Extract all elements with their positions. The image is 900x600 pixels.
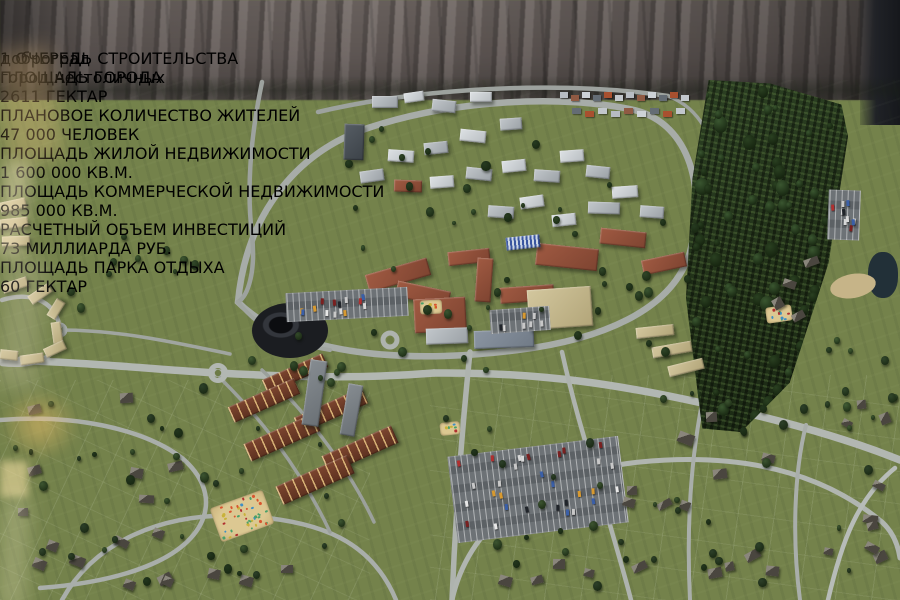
cottage	[139, 495, 154, 504]
cottage	[626, 92, 634, 98]
cottage	[663, 111, 672, 117]
cottage	[823, 547, 834, 556]
tree	[589, 521, 598, 531]
parked-car	[332, 299, 335, 305]
tree	[644, 287, 653, 297]
tree	[92, 452, 97, 457]
stat-label: ПЛОЩАДЬ ПАРКА ОТДЫХА	[0, 258, 384, 277]
parked-car	[344, 310, 347, 316]
tree	[553, 216, 560, 224]
tree	[762, 458, 771, 468]
tree	[562, 548, 569, 556]
playground-equipment	[435, 306, 438, 309]
playground-equipment	[254, 524, 257, 527]
cottage	[782, 279, 797, 291]
parked-car	[572, 509, 575, 515]
tree	[847, 568, 851, 573]
cottage	[659, 95, 667, 101]
tree	[239, 468, 244, 474]
cottage	[857, 400, 867, 410]
tree	[504, 277, 510, 284]
tree	[322, 543, 327, 549]
tree	[755, 542, 764, 552]
cottage	[593, 95, 601, 101]
tree	[467, 325, 472, 331]
parked-car	[565, 500, 568, 506]
cottage	[583, 568, 595, 578]
tree	[607, 182, 612, 188]
tree	[848, 348, 853, 354]
cottage	[531, 574, 545, 585]
playground-equipment	[242, 498, 245, 501]
stat-label: ПЛОЩАДЬ КОММЕРЧЕСКОЙ НЕДВИЖИМОСТИ	[0, 182, 384, 201]
model-building	[588, 201, 620, 214]
model-building	[474, 257, 493, 302]
tree	[102, 547, 107, 553]
model-building	[667, 358, 705, 377]
model-building	[430, 175, 455, 189]
tree	[391, 266, 396, 272]
tree	[207, 552, 214, 561]
cottage	[571, 95, 579, 101]
playground-equipment	[220, 506, 223, 509]
tree	[463, 184, 471, 193]
parked-car	[491, 455, 494, 461]
parked-car	[565, 510, 568, 516]
cottage	[803, 255, 820, 268]
tree	[674, 497, 679, 503]
playground-equipment	[454, 430, 457, 433]
cottage	[27, 464, 42, 476]
tree	[112, 536, 117, 542]
tree	[690, 391, 694, 396]
tree	[224, 564, 233, 574]
cottage	[676, 108, 685, 114]
parked-car	[456, 460, 460, 466]
cottage	[122, 579, 135, 591]
playground-equipment	[259, 520, 262, 523]
cottage	[152, 527, 165, 539]
playground-equipment	[222, 513, 225, 516]
tree	[398, 347, 407, 357]
tree	[80, 523, 89, 533]
parked-car	[464, 501, 468, 507]
playground-equipment	[249, 520, 252, 523]
playground-equipment	[235, 533, 238, 536]
cottage	[624, 108, 633, 114]
tree	[684, 275, 691, 283]
cottage	[45, 540, 59, 554]
parked-car	[325, 310, 328, 316]
cottage	[582, 92, 590, 98]
tree	[452, 221, 456, 226]
playground-equipment	[265, 510, 268, 513]
stats-panel: 1 ОЧЕРЕДЬ СТРОИТЕЛЬСТВА ПЛОЩАДЬ ГОРОДА 2…	[0, 49, 384, 296]
parked-car	[522, 312, 525, 318]
parked-car	[849, 225, 853, 231]
parked-car	[832, 205, 835, 211]
playground-equipment	[257, 516, 260, 519]
parked-car	[842, 209, 845, 215]
tree	[483, 367, 489, 373]
tree	[426, 207, 434, 216]
tree	[77, 303, 86, 313]
playground-equipment	[222, 522, 225, 525]
parked-car	[344, 297, 347, 303]
playground-pad	[439, 421, 460, 436]
stat-label: РАСЧЕТНЫЙ ОБЪЕМ ИНВЕСТИЦИЙ	[0, 220, 384, 239]
tree	[725, 399, 731, 406]
tree	[871, 415, 876, 420]
model-building	[599, 228, 646, 249]
cottage	[681, 95, 689, 101]
tree	[180, 534, 184, 539]
tree	[675, 507, 681, 514]
parked-car	[521, 456, 524, 462]
model-building	[403, 91, 424, 104]
stat-value: 73 МИЛЛИАРДА РУБ.	[0, 239, 384, 258]
parked-car	[846, 200, 849, 206]
cottage	[161, 576, 174, 588]
model-building	[46, 298, 65, 320]
playground-equipment	[784, 318, 787, 321]
tree	[842, 387, 850, 396]
tree	[646, 340, 652, 347]
tree	[706, 519, 711, 525]
model-building	[431, 99, 456, 113]
tree	[290, 361, 298, 370]
parked-car	[301, 309, 304, 315]
tree	[623, 556, 629, 563]
reflection-stats-streak	[0, 496, 31, 600]
tree	[174, 428, 183, 438]
playground-equipment	[445, 427, 448, 430]
tree	[164, 498, 169, 504]
tree	[147, 414, 155, 424]
model-building	[505, 234, 540, 250]
parked-car	[503, 325, 506, 331]
tree	[847, 425, 852, 431]
city-model-photo: доброград город нестоличных 1 ОЧЕРЕДЬ СТ…	[0, 0, 900, 600]
playground-equipment	[229, 510, 232, 513]
tree	[653, 502, 657, 507]
tree	[256, 426, 260, 431]
model-building	[275, 455, 354, 505]
playground-equipment	[250, 527, 253, 530]
parked-car	[471, 482, 475, 488]
tree	[691, 223, 699, 233]
tree	[864, 465, 873, 475]
parked-car	[551, 481, 554, 487]
cottage	[656, 498, 672, 511]
stat-value: 985 000 КВ.М.	[0, 201, 384, 220]
cottage	[604, 92, 612, 98]
tree	[574, 331, 582, 340]
parked-car	[525, 507, 529, 513]
tree	[626, 283, 633, 291]
tree	[504, 213, 511, 221]
stat-row: РАСЧЕТНЫЙ ОБЪЕМ ИНВЕСТИЦИЙ 73 МИЛЛИАРДА …	[0, 220, 384, 258]
parked-car	[494, 524, 498, 530]
parked-car	[539, 472, 543, 478]
lit-building-center	[0, 19, 37, 50]
tree	[371, 329, 377, 336]
lit-building-west	[0, 0, 32, 22]
parked-car	[465, 521, 469, 527]
cottage	[560, 92, 568, 98]
model-building	[470, 92, 492, 102]
tree	[327, 378, 335, 387]
tree	[126, 475, 134, 485]
tree	[68, 553, 74, 560]
model-building	[585, 165, 610, 179]
tree	[740, 427, 747, 435]
parked-car	[846, 216, 849, 222]
tree	[758, 578, 766, 587]
playground-pad	[210, 490, 275, 543]
tree	[130, 449, 135, 455]
cottage	[677, 430, 696, 446]
parked-car	[491, 490, 495, 496]
cottage	[167, 460, 184, 473]
tree	[642, 271, 651, 281]
parked-car	[505, 504, 509, 510]
parked-car	[558, 451, 562, 457]
playground-equipment	[787, 312, 790, 315]
cottage	[637, 95, 645, 101]
playground-equipment	[450, 425, 453, 428]
tree	[826, 347, 832, 354]
cottage	[498, 574, 513, 587]
cottage	[120, 393, 133, 404]
parked-car	[533, 313, 536, 319]
playground-equipment	[243, 513, 246, 516]
tree	[618, 539, 624, 546]
tree	[834, 337, 840, 343]
playground-equipment	[230, 529, 233, 532]
tree	[715, 557, 722, 565]
tree	[599, 267, 606, 276]
stat-row: ПЛОЩАДЬ ПАРКА ОТДЫХА 60 ГЕКТАР	[0, 258, 384, 296]
tree	[779, 420, 788, 430]
cottage	[572, 108, 581, 114]
stat-row: ПЛОЩАДЬ КОММЕРЧЕСКОЙ НЕДВИЖИМОСТИ 985 00…	[0, 182, 384, 220]
cottage	[627, 485, 638, 494]
cottage	[31, 556, 47, 570]
parked-car	[851, 219, 854, 225]
tree	[324, 493, 329, 499]
cottage	[670, 92, 678, 98]
cottage	[637, 111, 646, 117]
pond	[868, 252, 898, 298]
tree	[461, 355, 467, 362]
parked-car	[530, 321, 533, 327]
tree	[597, 482, 603, 489]
parked-car	[526, 453, 530, 459]
tree	[825, 401, 831, 407]
tree	[248, 356, 256, 365]
model-building	[501, 159, 526, 173]
tree	[558, 528, 563, 533]
playground-equipment	[230, 506, 233, 509]
tree	[593, 581, 602, 592]
tree	[660, 219, 666, 226]
tree	[843, 402, 851, 412]
tree	[635, 291, 643, 300]
parked-car	[610, 462, 614, 468]
tree	[471, 209, 476, 215]
playground-equipment	[454, 426, 457, 429]
warm-hotspot-core	[0, 461, 28, 497]
parked-car	[321, 298, 324, 304]
tree	[334, 369, 340, 376]
model-building	[500, 117, 523, 131]
model-building	[640, 205, 665, 219]
playground-equipment	[251, 506, 254, 509]
playground-equipment	[245, 507, 248, 510]
model-building	[426, 327, 469, 344]
cottage	[553, 559, 565, 569]
tree	[493, 539, 502, 550]
parked-car	[599, 442, 603, 448]
tree	[760, 405, 766, 412]
parked-car	[562, 448, 565, 454]
parked-car	[498, 481, 501, 487]
model-building	[560, 149, 585, 163]
model-building	[43, 340, 67, 358]
playground-equipment	[240, 509, 243, 512]
cottage	[713, 468, 728, 479]
parked-car	[592, 488, 595, 494]
parked-car	[338, 302, 341, 308]
playground-equipment	[237, 515, 240, 518]
tree	[660, 395, 667, 403]
cottage	[631, 560, 648, 574]
tree	[143, 577, 151, 586]
cottage	[707, 567, 723, 580]
tree	[524, 535, 529, 541]
tree	[499, 460, 506, 468]
cottage	[765, 565, 779, 576]
tree	[572, 231, 578, 238]
parked-car	[540, 321, 543, 327]
tree	[295, 332, 302, 340]
stats-title: 1 ОЧЕРЕДЬ СТРОИТЕЛЬСТВА	[0, 49, 384, 68]
playground-equipment	[222, 536, 225, 539]
tree	[487, 426, 492, 432]
cottage	[281, 564, 294, 572]
model-building	[340, 383, 364, 437]
parked-car	[591, 498, 595, 504]
model-building	[534, 169, 561, 183]
tree	[602, 281, 607, 287]
tree	[39, 481, 48, 491]
tree	[513, 560, 520, 568]
cottage	[872, 480, 886, 492]
tree	[595, 307, 601, 314]
tree	[338, 519, 345, 527]
model-building	[459, 129, 486, 144]
warm-hotspot	[0, 389, 80, 461]
parked-car	[499, 493, 503, 499]
cottage	[866, 521, 878, 531]
tree	[173, 453, 180, 461]
cottage	[598, 108, 607, 114]
parked-car	[312, 305, 316, 311]
parked-car	[514, 464, 518, 470]
tree	[837, 525, 842, 530]
parked-car	[556, 505, 559, 511]
playground-equipment	[224, 517, 227, 520]
cottage	[585, 111, 594, 117]
tree	[551, 474, 556, 480]
stat-label: ПЛОЩАДЬ ГОРОДА	[0, 68, 384, 87]
tree	[481, 161, 490, 171]
parked-car	[334, 311, 337, 317]
tree	[888, 393, 896, 402]
playground-equipment	[256, 499, 259, 502]
stat-value: 60 ГЕКТАР	[0, 277, 384, 296]
cottage	[615, 95, 623, 101]
tree	[800, 404, 809, 414]
tree	[532, 140, 540, 149]
model-building	[612, 185, 639, 199]
cottage	[791, 309, 807, 323]
playground-equipment	[228, 536, 231, 539]
tree	[199, 383, 208, 393]
playground-equipment	[252, 495, 255, 498]
tree	[39, 548, 46, 556]
tree	[558, 207, 562, 212]
tree	[651, 556, 657, 563]
tree	[200, 472, 209, 483]
tree	[253, 571, 260, 579]
parked-car	[596, 458, 599, 464]
tree	[318, 442, 322, 447]
tree	[494, 288, 501, 296]
model-building	[651, 341, 692, 359]
parked-car	[577, 491, 581, 497]
cottage	[611, 111, 620, 117]
cottage	[207, 568, 221, 580]
model-building	[535, 243, 599, 271]
parked-car	[841, 201, 844, 207]
cottage	[650, 108, 659, 114]
beach-oval	[828, 270, 877, 302]
tree	[881, 356, 889, 365]
tree	[160, 426, 164, 431]
cottage	[239, 575, 254, 588]
parked-car	[616, 487, 620, 493]
cottage	[878, 412, 892, 426]
playground-equipment	[240, 503, 243, 506]
playground-equipment	[224, 530, 227, 533]
tree	[240, 545, 247, 553]
tree	[213, 480, 219, 487]
playground-equipment	[259, 502, 262, 505]
tree	[318, 375, 323, 381]
tree	[399, 154, 405, 160]
parked-car	[523, 322, 526, 328]
cottage	[648, 92, 656, 98]
parked-car	[363, 303, 366, 309]
stat-value: 1 600 000 КВ.М.	[0, 163, 384, 182]
playground-equipment	[421, 302, 424, 305]
cottage	[724, 561, 735, 571]
cottage	[706, 411, 718, 422]
model-building	[636, 324, 675, 339]
playground-equipment	[771, 316, 774, 319]
